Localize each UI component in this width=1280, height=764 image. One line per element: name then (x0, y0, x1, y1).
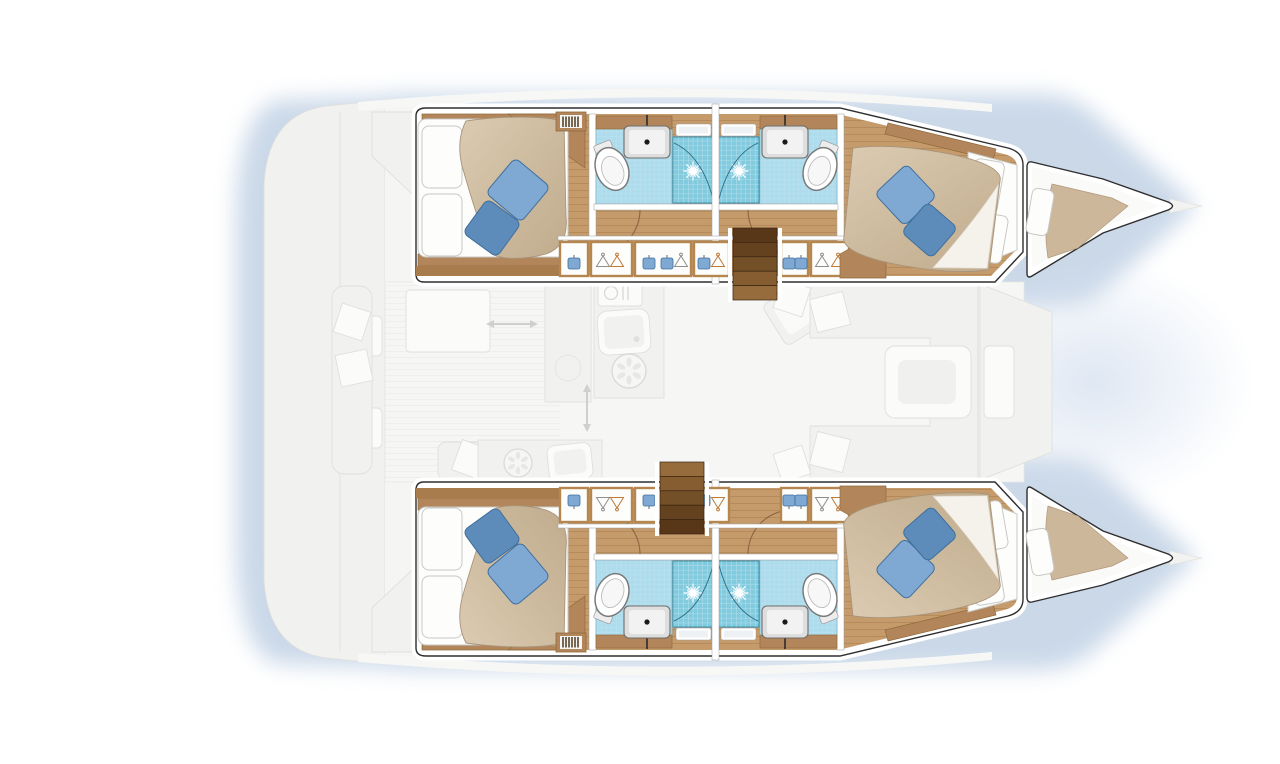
stove-burner-icon (504, 449, 532, 477)
stove-burner-icon (612, 354, 646, 388)
galley-counter (545, 280, 591, 402)
foredeck-step (984, 346, 1014, 418)
saloon-table-inset (898, 360, 956, 404)
galley-sink-icon (546, 442, 594, 482)
deck-plan-canvas (40, 16, 1280, 748)
galley-sink-icon (597, 308, 652, 356)
catamaran-floor-plan (40, 16, 1280, 748)
companionway-steps-port (728, 228, 782, 302)
companionway-steps-starboard (655, 462, 709, 536)
cockpit-table (406, 290, 490, 352)
cushion (335, 349, 373, 387)
